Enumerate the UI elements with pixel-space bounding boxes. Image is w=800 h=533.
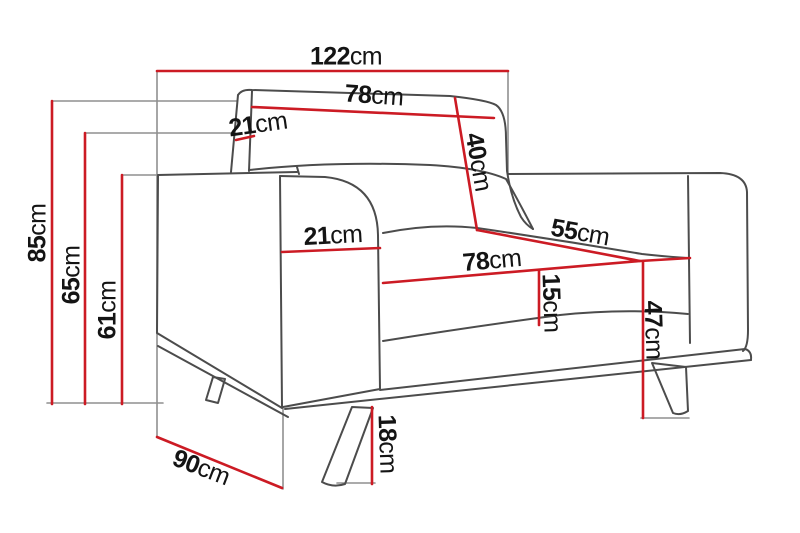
dimension-unit: cm (94, 281, 122, 313)
label-leg-height: 18cm (373, 414, 400, 474)
dimension-value: 18 (372, 414, 401, 442)
label-back-height: 65cm (60, 246, 85, 305)
dimension-unit: cm (575, 218, 612, 251)
dimension-unit: cm (373, 441, 402, 474)
label-seat-height: 47cm (639, 300, 666, 360)
dimension-value: 122 (310, 43, 350, 71)
dimension-value: 21 (227, 111, 257, 142)
dimension-unit: cm (24, 204, 52, 236)
dimension-unit: cm (253, 107, 289, 139)
dimension-unit: cm (537, 300, 566, 333)
label-total-width: 122cm (310, 45, 382, 70)
base-front-top-edge (380, 349, 745, 390)
base-right-cap (745, 349, 751, 360)
dimension-unit: cm (370, 81, 404, 111)
left-armrest-front-left-edge (280, 176, 282, 407)
front-right-leg (322, 407, 373, 486)
dimension-value: 78 (461, 247, 490, 277)
dimension-value: 47 (638, 300, 667, 328)
right-armrest-inner-edge (688, 176, 690, 343)
label-seat-width: 78cm (462, 246, 523, 276)
dimension-unit: cm (488, 244, 522, 275)
left-armrest-side-face (157, 176, 282, 408)
armchair-outline (157, 90, 751, 486)
label-armrest-width: 21cm (303, 222, 363, 250)
left-armrest-top-edge (158, 172, 297, 175)
left-armrest-front-face (280, 176, 380, 407)
extension-lines (47, 71, 689, 489)
dimension-value: 61 (94, 313, 122, 340)
label-total-height: 85cm (26, 204, 51, 263)
dimension-value: 65 (58, 278, 86, 305)
dimension-value: 21 (303, 222, 331, 251)
dimension-value: 15 (536, 273, 565, 301)
dimension-value: 78 (344, 79, 372, 109)
label-backrest-width: 78cm (344, 81, 404, 110)
base-left-strip (158, 346, 288, 417)
dimension-unit: cm (58, 246, 86, 278)
label-cushion-height: 15cm (537, 273, 564, 333)
dimension-unit: cm (350, 43, 382, 71)
dimension-unit: cm (464, 157, 497, 194)
furniture-dimension-diagram: 122cm 78cm 21cm 40cm 85cm 65cm 61cm 21cm… (0, 0, 800, 533)
label-armrest-height: 61cm (96, 281, 121, 340)
dimension-unit: cm (329, 220, 363, 250)
dimension-value: 85 (24, 236, 52, 263)
dimension-unit: cm (639, 327, 668, 360)
